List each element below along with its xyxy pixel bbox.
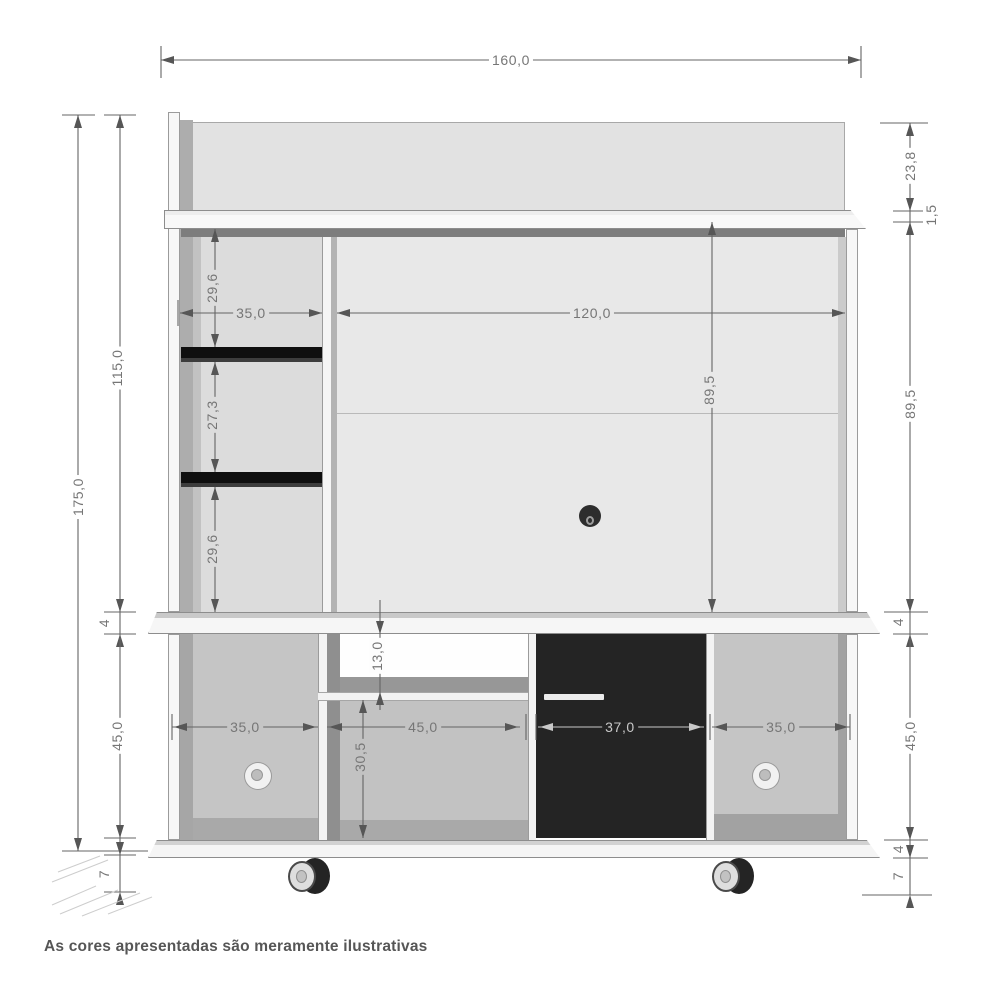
label-caster-height-left: 7 (96, 867, 112, 881)
label-shelf-gap-top: 29,6 (204, 270, 220, 306)
label-caster-height-right: 7 (890, 869, 906, 883)
dim-panel-height-inner-895 (708, 222, 716, 612)
label-total-height: 175,0 (70, 475, 86, 519)
label-shelf-gap-middle: 27,3 (204, 397, 220, 433)
dim-base-plate-and-caster-right (906, 840, 914, 908)
dim-right-chain-extensions (862, 123, 932, 895)
label-base-height-right: 45,0 (902, 718, 918, 754)
label-panel-height-inner: 89,5 (701, 372, 717, 408)
label-column-width: 35,0 (233, 305, 269, 321)
label-base-middle-width: 45,0 (405, 719, 441, 735)
dimension-lines-layer (0, 0, 1000, 1000)
label-top-shelf-thickness: 1,5 (923, 201, 939, 228)
technical-drawing-canvas: 160,0 175,0 115,0 4 45,0 7 29,6 27,3 29,… (0, 0, 1000, 1000)
label-top-panel-height: 23,8 (902, 148, 918, 184)
label-base-plate-thickness-right: 4 (890, 842, 906, 856)
label-base-height-left: 45,0 (109, 718, 125, 754)
label-base-right-width: 35,0 (763, 719, 799, 735)
label-niche-lower-height: 30,5 (352, 739, 368, 775)
label-panel-height-right: 89,5 (902, 386, 918, 422)
label-door-width: 37,0 (602, 719, 638, 735)
label-shelf-gap-bottom: 29,6 (204, 531, 220, 567)
label-upper-height: 115,0 (109, 347, 125, 390)
label-niche-upper-height: 13,0 (369, 638, 385, 674)
floor-hatching (52, 856, 152, 916)
label-total-width: 160,0 (489, 52, 533, 68)
label-panel-width: 120,0 (570, 305, 614, 321)
label-stand-top-thickness-right: 4 (890, 615, 906, 629)
label-base-left-width: 35,0 (227, 719, 263, 735)
label-stand-top-thickness-left: 4 (96, 616, 112, 630)
footer-note: As cores apresentadas são meramente ilus… (44, 938, 428, 956)
